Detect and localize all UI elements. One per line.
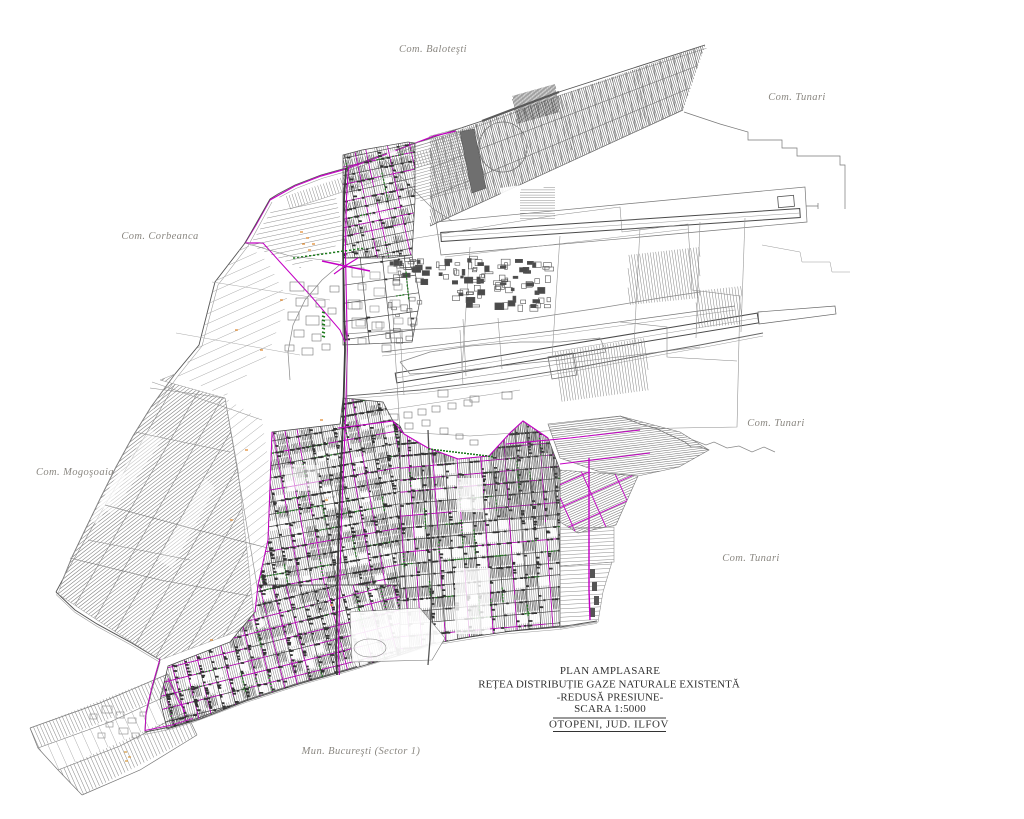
svg-text:Com. Mogoşoaia: Com. Mogoşoaia xyxy=(36,467,114,478)
svg-text:Com. Corbeanca: Com. Corbeanca xyxy=(121,231,198,242)
svg-text:OTOPENI, JUD. ILFOV: OTOPENI, JUD. ILFOV xyxy=(549,719,669,731)
svg-text:Com. Tunari: Com. Tunari xyxy=(722,553,780,564)
svg-text:SCARA 1:5000: SCARA 1:5000 xyxy=(574,703,646,715)
svg-text:REȚEA DISTRIBUȚIE GAZE NATU: REȚEA DISTRIBUȚIE GAZE NATURALE EXISTENT… xyxy=(478,679,740,691)
svg-text:Com. Baloteşti: Com. Baloteşti xyxy=(399,44,467,55)
svg-text:Com. Tunari: Com. Tunari xyxy=(747,418,805,429)
svg-text:Com. Tunari: Com. Tunari xyxy=(768,92,826,103)
svg-text:-REDUSĂ PRESIUNE-: -REDUSĂ PRESIUNE- xyxy=(557,692,664,704)
svg-text:Mun. Bucureşti (Sector 1): Mun. Bucureşti (Sector 1) xyxy=(301,746,421,757)
svg-text:PLAN AMPLASARE: PLAN AMPLASARE xyxy=(560,665,660,677)
